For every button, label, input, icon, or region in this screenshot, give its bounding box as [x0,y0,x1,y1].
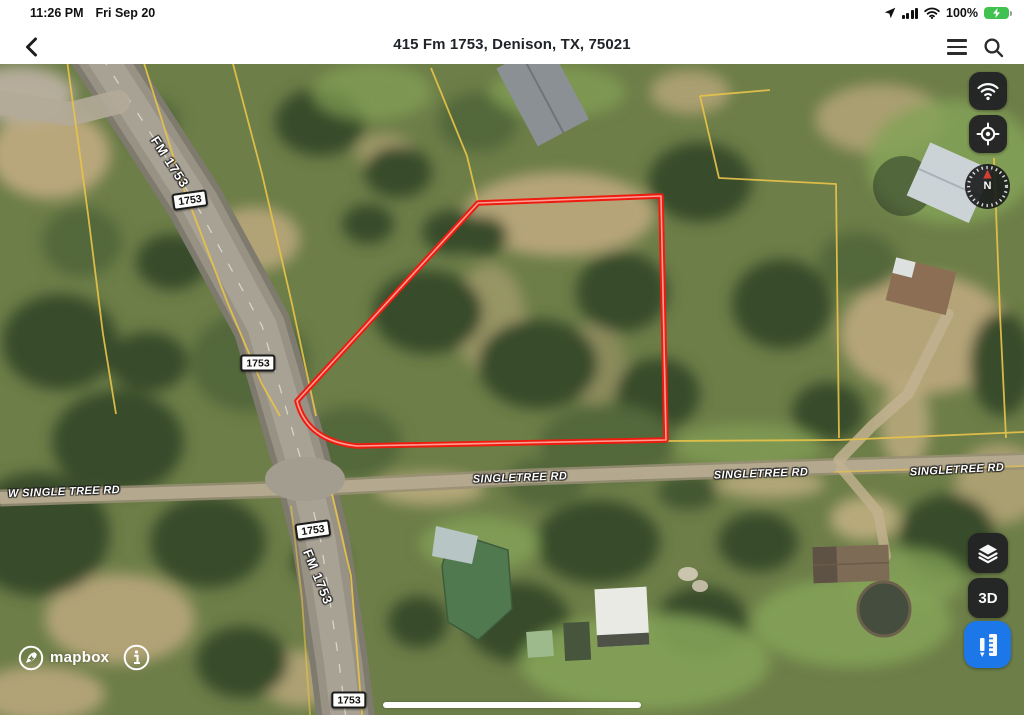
mapbox-logo-icon [18,645,44,671]
info-icon[interactable] [123,644,150,671]
ruler-pencil-icon [975,631,1001,659]
navigation-bar: 415 Fm 1753, Denison, TX, 75021 [0,28,1024,64]
home-indicator[interactable] [383,702,641,708]
location-arrow-icon [884,7,896,19]
map-canvas[interactable] [0,64,1024,715]
hamburger-icon [947,39,967,54]
pond [858,582,910,636]
layers-icon [976,541,1000,565]
locate-me-button[interactable] [969,115,1007,153]
date-label: Fri Sep 20 [96,6,156,20]
battery-percent-label: 100% [946,6,978,20]
compass-north-label: N [964,180,1011,192]
status-bar: 11:26 PM Fri Sep 20 100% [0,0,1024,28]
barn-roof [812,545,889,584]
clock-label: 11:26 PM [30,6,84,20]
cellular-signal-icon [902,8,919,19]
wifi-sync-button[interactable] [969,72,1007,110]
page-title: 415 Fm 1753, Denison, TX, 75021 [0,36,1024,53]
satellite-imagery [0,64,1024,715]
map-attribution: mapbox [18,644,150,671]
compass-button[interactable]: N [964,163,1011,210]
wifi-icon [976,80,1000,102]
mapbox-wordmark: mapbox [50,649,109,666]
search-icon [983,37,1004,58]
layers-button[interactable] [968,533,1008,573]
menu-button[interactable] [942,32,972,62]
battery-icon [984,7,1012,20]
wifi-status-icon [924,7,940,19]
route-shield-1753: 1753 [331,692,366,709]
route-shield-1753: 1753 [240,355,275,372]
search-button[interactable] [978,32,1008,62]
measure-button[interactable] [964,621,1011,668]
view-3d-button[interactable]: 3D [968,578,1008,618]
gps-target-icon [976,122,1000,146]
